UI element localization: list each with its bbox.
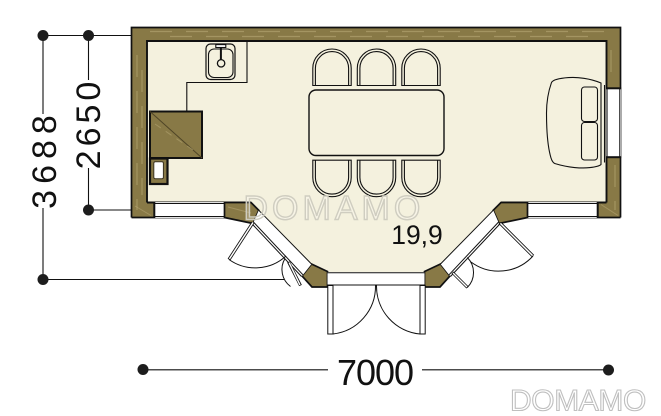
svg-text:3688: 3688: [26, 109, 64, 209]
svg-text:2650: 2650: [70, 78, 108, 170]
svg-text:7000: 7000: [337, 352, 413, 393]
svg-text:DOMAMO: DOMAMO: [244, 190, 425, 228]
svg-text:DOMAMO: DOMAMO: [510, 385, 646, 416]
